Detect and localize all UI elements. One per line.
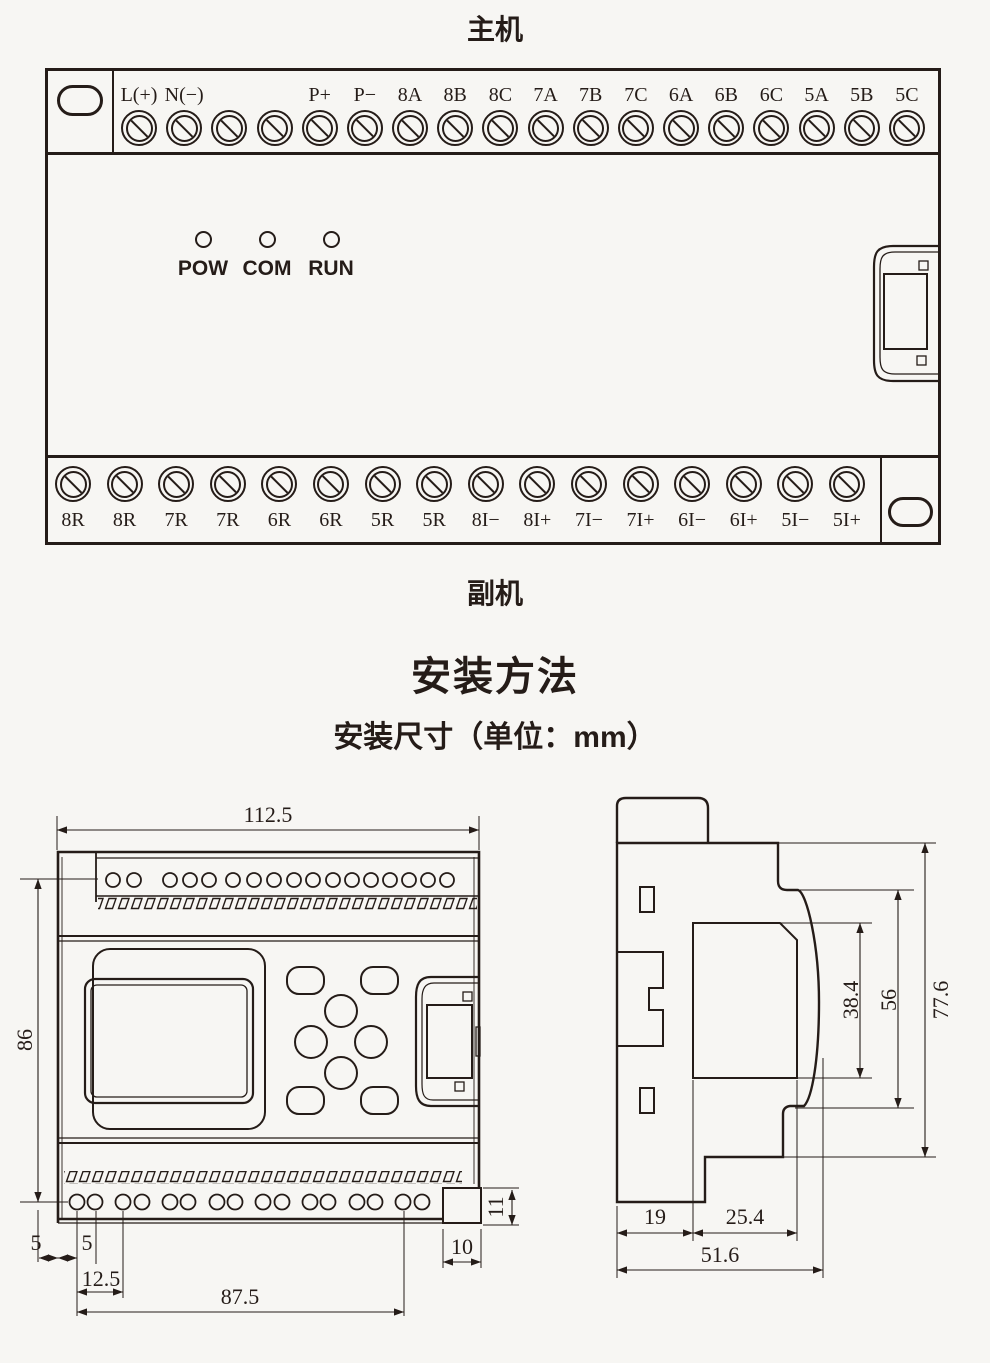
status-led-group: POW COM RUN bbox=[175, 231, 359, 281]
led-indicator-icon bbox=[195, 231, 212, 248]
status-led: RUN bbox=[303, 231, 359, 281]
terminal-screw-icon bbox=[889, 110, 925, 146]
dimension-label: 38.4 bbox=[838, 981, 863, 1020]
terminal-label: 8R bbox=[113, 508, 136, 532]
top-terminal-holes bbox=[106, 873, 454, 887]
side-recess bbox=[693, 923, 797, 1078]
side-view-outline bbox=[617, 798, 819, 1202]
terminal: 6R bbox=[312, 466, 350, 542]
terminal-screw-icon bbox=[437, 110, 473, 146]
terminal: 7R bbox=[209, 466, 247, 542]
mounting-slot-icon bbox=[57, 85, 103, 116]
terminal: 7R bbox=[157, 466, 195, 542]
terminal-label: 6I− bbox=[678, 508, 706, 532]
terminal-screw-icon bbox=[257, 110, 293, 146]
front-view-drawing: 112.5 86 5 5 12.5 87.5 10 11 bbox=[15, 795, 525, 1327]
terminal-label: 5R bbox=[371, 508, 394, 532]
dimension-label: 56 bbox=[876, 989, 901, 1011]
installation-subtitle: 安装尺寸（单位：mm） bbox=[0, 712, 990, 756]
side-view-drawing: 38.4 56 77.6 19 25.4 51.6 bbox=[590, 790, 990, 1290]
terminal-label: 5I− bbox=[781, 508, 809, 532]
terminal-screw-icon bbox=[618, 110, 654, 146]
device-front-panel: POW COM RUN bbox=[48, 155, 938, 455]
terminal: 8A bbox=[391, 83, 429, 152]
terminal-label: 8B bbox=[444, 83, 467, 107]
terminal: 5C bbox=[888, 83, 926, 152]
terminal: 7I− bbox=[570, 466, 608, 542]
terminal-label: 6A bbox=[669, 83, 693, 107]
dimension-label: 19 bbox=[644, 1204, 666, 1229]
top-terminal-strip: L(+) N(−) bbox=[48, 71, 938, 155]
terminal-label: 6B bbox=[715, 83, 738, 107]
terminal-screw-icon bbox=[623, 466, 659, 502]
main-unit-device: L(+) N(−) bbox=[45, 68, 941, 545]
terminal-screw-icon bbox=[571, 466, 607, 502]
terminal-screw-icon bbox=[528, 110, 564, 146]
terminal-screw-icon bbox=[211, 110, 247, 146]
terminal-screw-icon bbox=[753, 110, 789, 146]
terminal-screw-icon bbox=[107, 466, 143, 502]
terminal: 5R bbox=[415, 466, 453, 542]
bottom-terminal-strip: 8R 8R 7R 7R bbox=[48, 455, 938, 542]
display-window bbox=[85, 979, 253, 1103]
terminal-label: 7B bbox=[579, 83, 602, 107]
terminal-screw-icon bbox=[708, 110, 744, 146]
terminal-screw-icon bbox=[482, 110, 518, 146]
terminal-screw-icon bbox=[313, 466, 349, 502]
dimension-label: 10 bbox=[451, 1234, 473, 1259]
terminal-screw-icon bbox=[302, 110, 338, 146]
terminal-screw-icon bbox=[573, 110, 609, 146]
terminal: 7C bbox=[617, 83, 655, 152]
terminal-screw-icon bbox=[416, 466, 452, 502]
terminal-label: 7R bbox=[216, 508, 239, 532]
led-indicator-icon bbox=[323, 231, 340, 248]
installation-title: 安装方法 bbox=[0, 644, 990, 702]
terminal-label: 7I− bbox=[575, 508, 603, 532]
terminal-label: 6R bbox=[319, 508, 342, 532]
dimension-label: 5 bbox=[31, 1230, 42, 1255]
terminal-label: 5C bbox=[895, 83, 918, 107]
terminal-screw-icon bbox=[166, 110, 202, 146]
terminal: 8R bbox=[54, 466, 92, 542]
mounting-slot-icon bbox=[888, 497, 933, 527]
terminal-screw-icon bbox=[158, 466, 194, 502]
top-left-corner-cell bbox=[48, 71, 114, 152]
terminal-screw-icon bbox=[468, 466, 504, 502]
terminal: P+ bbox=[301, 83, 339, 152]
bottom-terminal-holes bbox=[70, 1195, 430, 1210]
terminal-label: P+ bbox=[308, 83, 330, 107]
terminal bbox=[210, 83, 248, 152]
terminal-screw-icon bbox=[829, 466, 865, 502]
terminal-screw-icon bbox=[777, 466, 813, 502]
terminal-screw-icon bbox=[799, 110, 835, 146]
terminal-label: N(−) bbox=[165, 83, 204, 107]
terminal: 6R bbox=[260, 466, 298, 542]
terminal: 6I− bbox=[673, 466, 711, 542]
terminal: 5A bbox=[798, 83, 836, 152]
terminal: 8B bbox=[436, 83, 474, 152]
terminal-screw-icon bbox=[261, 466, 297, 502]
terminal-screw-icon bbox=[365, 466, 401, 502]
terminal-screw-icon bbox=[844, 110, 880, 146]
terminal-label: L(+) bbox=[121, 83, 158, 107]
terminal-screw-icon bbox=[347, 110, 383, 146]
dimension-label: 86 bbox=[15, 1029, 37, 1051]
terminal-label: 7C bbox=[624, 83, 647, 107]
terminal: 5I+ bbox=[828, 466, 866, 542]
terminal-label: 6I+ bbox=[730, 508, 758, 532]
terminal: 8R bbox=[106, 466, 144, 542]
led-label: POW bbox=[178, 257, 228, 281]
terminal-label: 5B bbox=[850, 83, 873, 107]
terminal-screw-icon bbox=[55, 466, 91, 502]
dimension-label: 77.6 bbox=[928, 981, 953, 1020]
terminal: 6I+ bbox=[725, 466, 763, 542]
terminal-label: 6C bbox=[760, 83, 783, 107]
dimension-label: 12.5 bbox=[82, 1266, 121, 1291]
terminal-label: 6R bbox=[268, 508, 291, 532]
terminal-label: 5R bbox=[422, 508, 445, 532]
secondary-unit-title: 副机 bbox=[0, 572, 990, 612]
manual-page: 主机 L(+) N(−) bbox=[0, 0, 990, 1363]
terminal: N(−) bbox=[165, 83, 203, 152]
terminal: 7B bbox=[572, 83, 610, 152]
terminal-label: 8A bbox=[398, 83, 422, 107]
terminal: 6A bbox=[662, 83, 700, 152]
status-led: POW bbox=[175, 231, 231, 281]
terminal-screw-icon bbox=[663, 110, 699, 146]
terminal-label: 7I+ bbox=[627, 508, 655, 532]
din-rail-slot bbox=[617, 952, 663, 1046]
terminal-screw-icon bbox=[519, 466, 555, 502]
terminal: P− bbox=[346, 83, 384, 152]
terminal-screw-icon bbox=[726, 466, 762, 502]
dimension-label: 5 bbox=[82, 1230, 93, 1255]
bottom-right-corner-cell bbox=[880, 458, 938, 542]
terminal-screw-icon bbox=[210, 466, 246, 502]
terminal-screw-icon bbox=[392, 110, 428, 146]
dimension-label: 51.6 bbox=[701, 1242, 740, 1267]
main-unit-title: 主机 bbox=[0, 8, 990, 48]
led-label: COM bbox=[243, 257, 292, 281]
status-led: COM bbox=[239, 231, 295, 281]
terminal: 8I− bbox=[467, 466, 505, 542]
terminal: 8C bbox=[481, 83, 519, 152]
led-label: RUN bbox=[308, 257, 354, 281]
dimension-label: 11 bbox=[483, 1196, 508, 1217]
terminal bbox=[256, 83, 294, 152]
expansion-connector-icon bbox=[866, 243, 938, 383]
keypad-buttons bbox=[287, 967, 398, 1114]
dimension-label: 25.4 bbox=[726, 1204, 765, 1229]
terminal-screw-icon bbox=[121, 110, 157, 146]
top-terminal-row: L(+) N(−) bbox=[114, 71, 938, 152]
terminal: 6B bbox=[707, 83, 745, 152]
terminal-label: 8I− bbox=[472, 508, 500, 532]
front-view-extension-lines bbox=[20, 816, 519, 1316]
terminal-label: 7A bbox=[533, 83, 557, 107]
front-view-outline bbox=[58, 852, 481, 1223]
terminal-label: 5A bbox=[804, 83, 828, 107]
terminal-label: 7R bbox=[165, 508, 188, 532]
terminal-label: P− bbox=[354, 83, 376, 107]
terminal: 7A bbox=[527, 83, 565, 152]
led-indicator-icon bbox=[259, 231, 276, 248]
terminal-label: 8R bbox=[61, 508, 84, 532]
dimension-label: 87.5 bbox=[221, 1284, 260, 1309]
terminal: 5B bbox=[843, 83, 881, 152]
terminal: 8I+ bbox=[518, 466, 556, 542]
terminal: 5R bbox=[364, 466, 402, 542]
front-connector bbox=[416, 977, 480, 1106]
terminal-label: 8I+ bbox=[523, 508, 551, 532]
terminal-label: 8C bbox=[489, 83, 512, 107]
terminal-label: 5I+ bbox=[833, 508, 861, 532]
terminal: 5I− bbox=[776, 466, 814, 542]
bottom-terminal-row: 8R 8R 7R 7R bbox=[48, 458, 880, 542]
terminal: 6C bbox=[752, 83, 790, 152]
dimension-label: 112.5 bbox=[244, 802, 293, 827]
terminal: L(+) bbox=[120, 83, 158, 152]
side-view-dimension-labels: 38.4 56 77.6 19 25.4 51.6 bbox=[644, 981, 953, 1267]
terminal: 7I+ bbox=[622, 466, 660, 542]
terminal-screw-icon bbox=[674, 466, 710, 502]
